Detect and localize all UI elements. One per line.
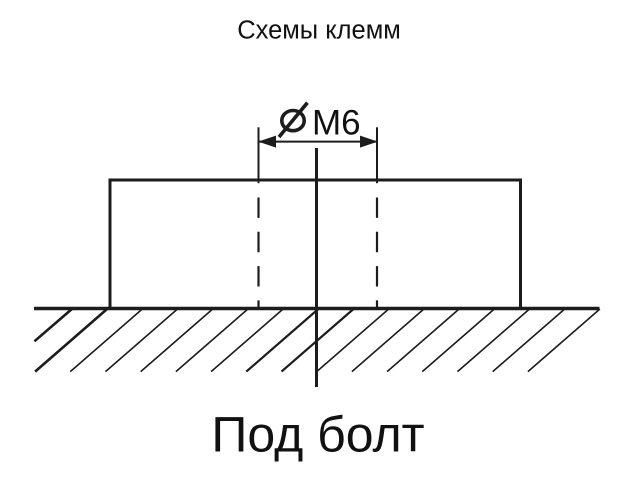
svg-text:М6: М6 (312, 104, 361, 143)
svg-text:Под болт: Под болт (211, 407, 424, 463)
svg-text:Схемы клемм: Схемы клемм (237, 17, 401, 45)
